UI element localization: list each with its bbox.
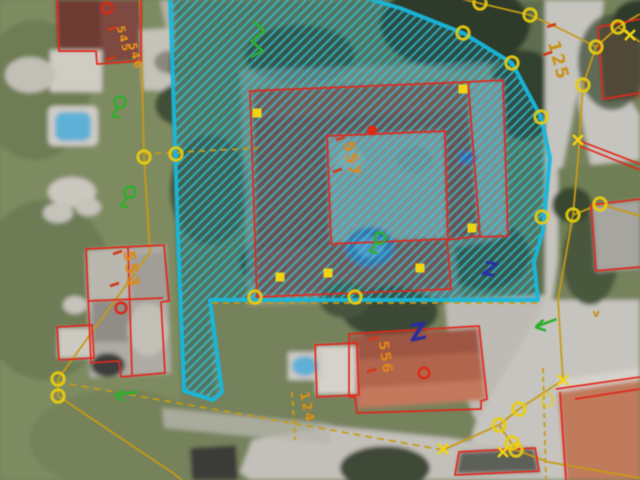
building-dot-marker bbox=[367, 125, 377, 135]
vertex-ring-marker bbox=[493, 419, 505, 431]
vertex-ring-marker bbox=[567, 209, 579, 221]
vertex-ring-marker bbox=[513, 403, 525, 415]
vegetation-zigzag-symbol bbox=[249, 21, 267, 58]
building-ring-marker bbox=[116, 303, 127, 314]
vertex-ring-marker bbox=[536, 211, 548, 223]
parcel-label: 553 bbox=[119, 249, 143, 289]
vertex-ring-marker bbox=[474, 0, 486, 9]
orchard-tree-symbol bbox=[108, 95, 129, 119]
label-tick bbox=[333, 169, 342, 172]
vertex-ring-marker bbox=[506, 57, 518, 69]
square-marker bbox=[468, 224, 477, 233]
label-tick bbox=[110, 283, 119, 286]
vertex-ring-marker bbox=[349, 291, 361, 303]
label-tick bbox=[369, 337, 378, 340]
label-tick bbox=[547, 24, 556, 27]
annotation-letter-glyph: Z bbox=[480, 256, 499, 282]
square-marker bbox=[324, 269, 333, 278]
markers-layer: ZZ 125553557556124545546v bbox=[0, 0, 640, 480]
cross-marker bbox=[498, 447, 508, 457]
annotation-letter: Z bbox=[480, 256, 499, 282]
parcel-label: 557 bbox=[339, 140, 364, 179]
vertex-ring-marker bbox=[457, 27, 469, 39]
annotation-letter: Z bbox=[406, 317, 430, 348]
label-tick bbox=[106, 57, 115, 60]
parcel-label: 556 bbox=[375, 340, 396, 376]
vertex-ring-marker bbox=[524, 9, 536, 21]
label-tick bbox=[367, 369, 376, 372]
parcel-label: 546 bbox=[126, 41, 145, 71]
vertex-ring-marker bbox=[170, 148, 182, 160]
orchard-tree-symbol bbox=[369, 232, 387, 254]
arrow-left-symbol bbox=[535, 318, 558, 332]
building-ring-marker bbox=[102, 3, 113, 14]
label-tick bbox=[336, 137, 345, 140]
vertex-ring-marker bbox=[249, 291, 261, 303]
parcel-label: v bbox=[593, 307, 602, 320]
cross-marker bbox=[438, 444, 448, 454]
parcel-labels-group: 125553557556124545546v bbox=[106, 24, 601, 424]
annotation-letter-glyph: Z bbox=[406, 317, 430, 348]
orchard-tree-symbol bbox=[118, 186, 138, 209]
cross-marker bbox=[625, 30, 635, 40]
square-marker bbox=[459, 85, 468, 94]
vertex-ring-marker bbox=[612, 21, 624, 33]
vertex-ring-marker bbox=[535, 111, 547, 123]
vertex-ring-marker bbox=[541, 394, 553, 406]
building-ring-marker bbox=[419, 368, 430, 379]
vertex-ring-marker bbox=[590, 41, 602, 53]
square-marker bbox=[276, 273, 285, 282]
parcel-label: 124 bbox=[296, 390, 317, 424]
vertex-ring-marker bbox=[52, 373, 64, 385]
vertex-ring-marker bbox=[577, 79, 589, 91]
parcel-label: 125 bbox=[543, 39, 573, 83]
square-marker bbox=[253, 109, 262, 118]
vertex-ring-marker bbox=[138, 151, 150, 163]
vertex-ring-marker bbox=[594, 198, 606, 210]
arrow-left-symbol bbox=[115, 390, 138, 402]
cross-marker bbox=[573, 135, 583, 145]
cross-marker bbox=[558, 375, 568, 385]
vertex-ring-marker bbox=[52, 390, 64, 402]
square-marker bbox=[416, 264, 425, 273]
map-symbols-group: ZZ bbox=[108, 21, 558, 401]
map-viewport[interactable]: ZZ 125553557556124545546v bbox=[0, 0, 640, 480]
